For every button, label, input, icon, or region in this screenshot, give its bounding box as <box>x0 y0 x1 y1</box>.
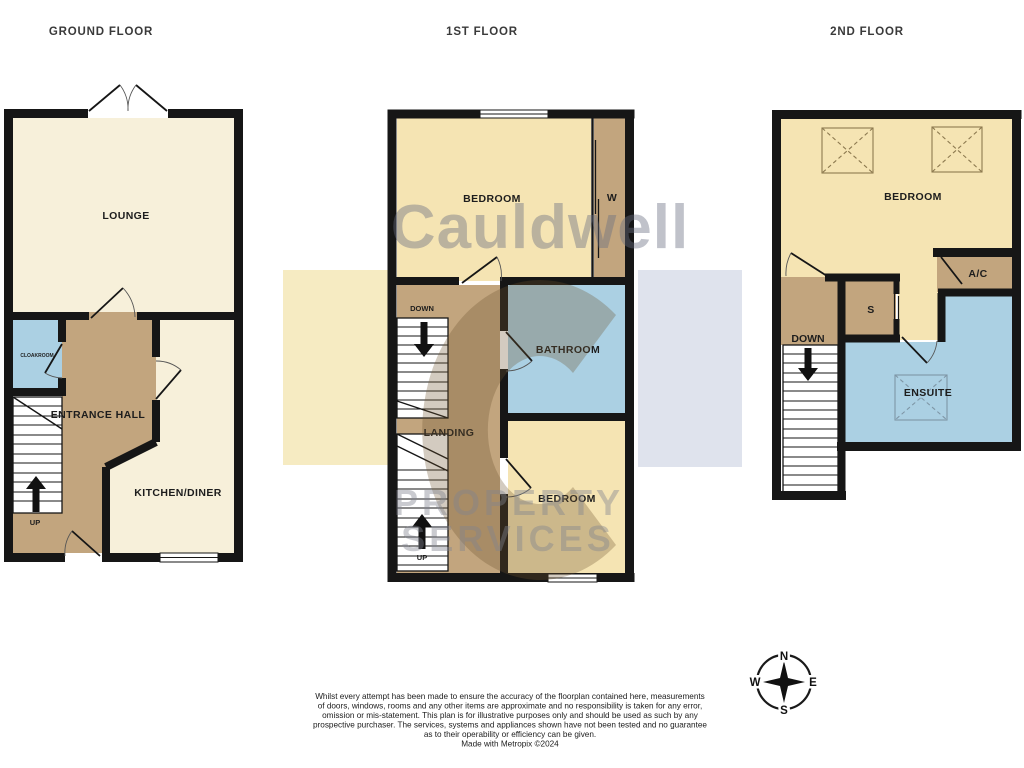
compass-star <box>763 661 805 703</box>
disclaimer-line: Whilst every attempt has been made to en… <box>315 692 705 701</box>
f2-ac-label: A/C <box>968 268 987 280</box>
disclaimer-text: Whilst every attempt has been made to en… <box>313 692 707 749</box>
disclaimer-credit: Made with Metropix ©2024 <box>461 740 559 749</box>
second-floor-plan: BEDROOM A/C S DOWN ENSUITE <box>772 110 1022 500</box>
watermark-blue-square <box>638 270 742 467</box>
lounge-label: LOUNGE <box>102 210 149 222</box>
compass-south-label: S <box>780 705 788 717</box>
ground-floor-plan: LOUNGE CLOAKROOM ENTRANCE HALL KITCHEN/D… <box>4 85 243 562</box>
disclaimer-line: as to their operability or efficiency ca… <box>424 730 596 739</box>
compass-west-label: W <box>750 677 761 689</box>
compass-east-label: E <box>809 677 817 689</box>
f2-store-label: S <box>867 304 874 316</box>
compass-rose: N E S W <box>750 651 818 717</box>
entrance-hall-label: ENTRANCE HALL <box>51 409 146 421</box>
second-floor-title: 2ND FLOOR <box>830 26 904 38</box>
first-floor-title: 1ST FLOOR <box>446 26 518 38</box>
disclaimer-line: omission or mis-statement. This plan is … <box>322 711 699 720</box>
f1-front-window <box>480 110 548 118</box>
disclaimer-line: of doors, windows, rooms and any other i… <box>318 702 703 711</box>
floorplan-canvas: GROUND FLOOR 1ST FLOOR 2ND FLOOR LOUNG <box>0 0 1024 768</box>
gf-kitchen-window <box>160 553 218 562</box>
cloakroom-label: CLOAKROOM <box>20 353 53 359</box>
compass-north-label: N <box>780 651 788 663</box>
ground-floor-title: GROUND FLOOR <box>49 26 153 38</box>
watermark-brand: Cauldwell <box>391 193 689 262</box>
gf-up-label: UP <box>30 518 40 527</box>
watermark-yellow-square <box>283 270 393 465</box>
watermark-word-services: SERVICES <box>401 518 614 559</box>
f2-ensuite-label: ENSUITE <box>904 387 952 399</box>
disclaimer-line: prospective purchaser. The services, sys… <box>313 721 707 730</box>
watermark-word-property: PROPERTY <box>394 482 624 523</box>
f2-bedroom-label: BEDROOM <box>884 191 942 203</box>
floorplan-page: GROUND FLOOR 1ST FLOOR 2ND FLOOR LOUNG <box>0 0 1024 768</box>
f2-down-label: DOWN <box>791 333 824 345</box>
kitchen-diner-label: KITCHEN/DINER <box>134 487 221 499</box>
f2-store-sliding-door <box>895 294 899 322</box>
f1-down-label: DOWN <box>410 304 434 313</box>
